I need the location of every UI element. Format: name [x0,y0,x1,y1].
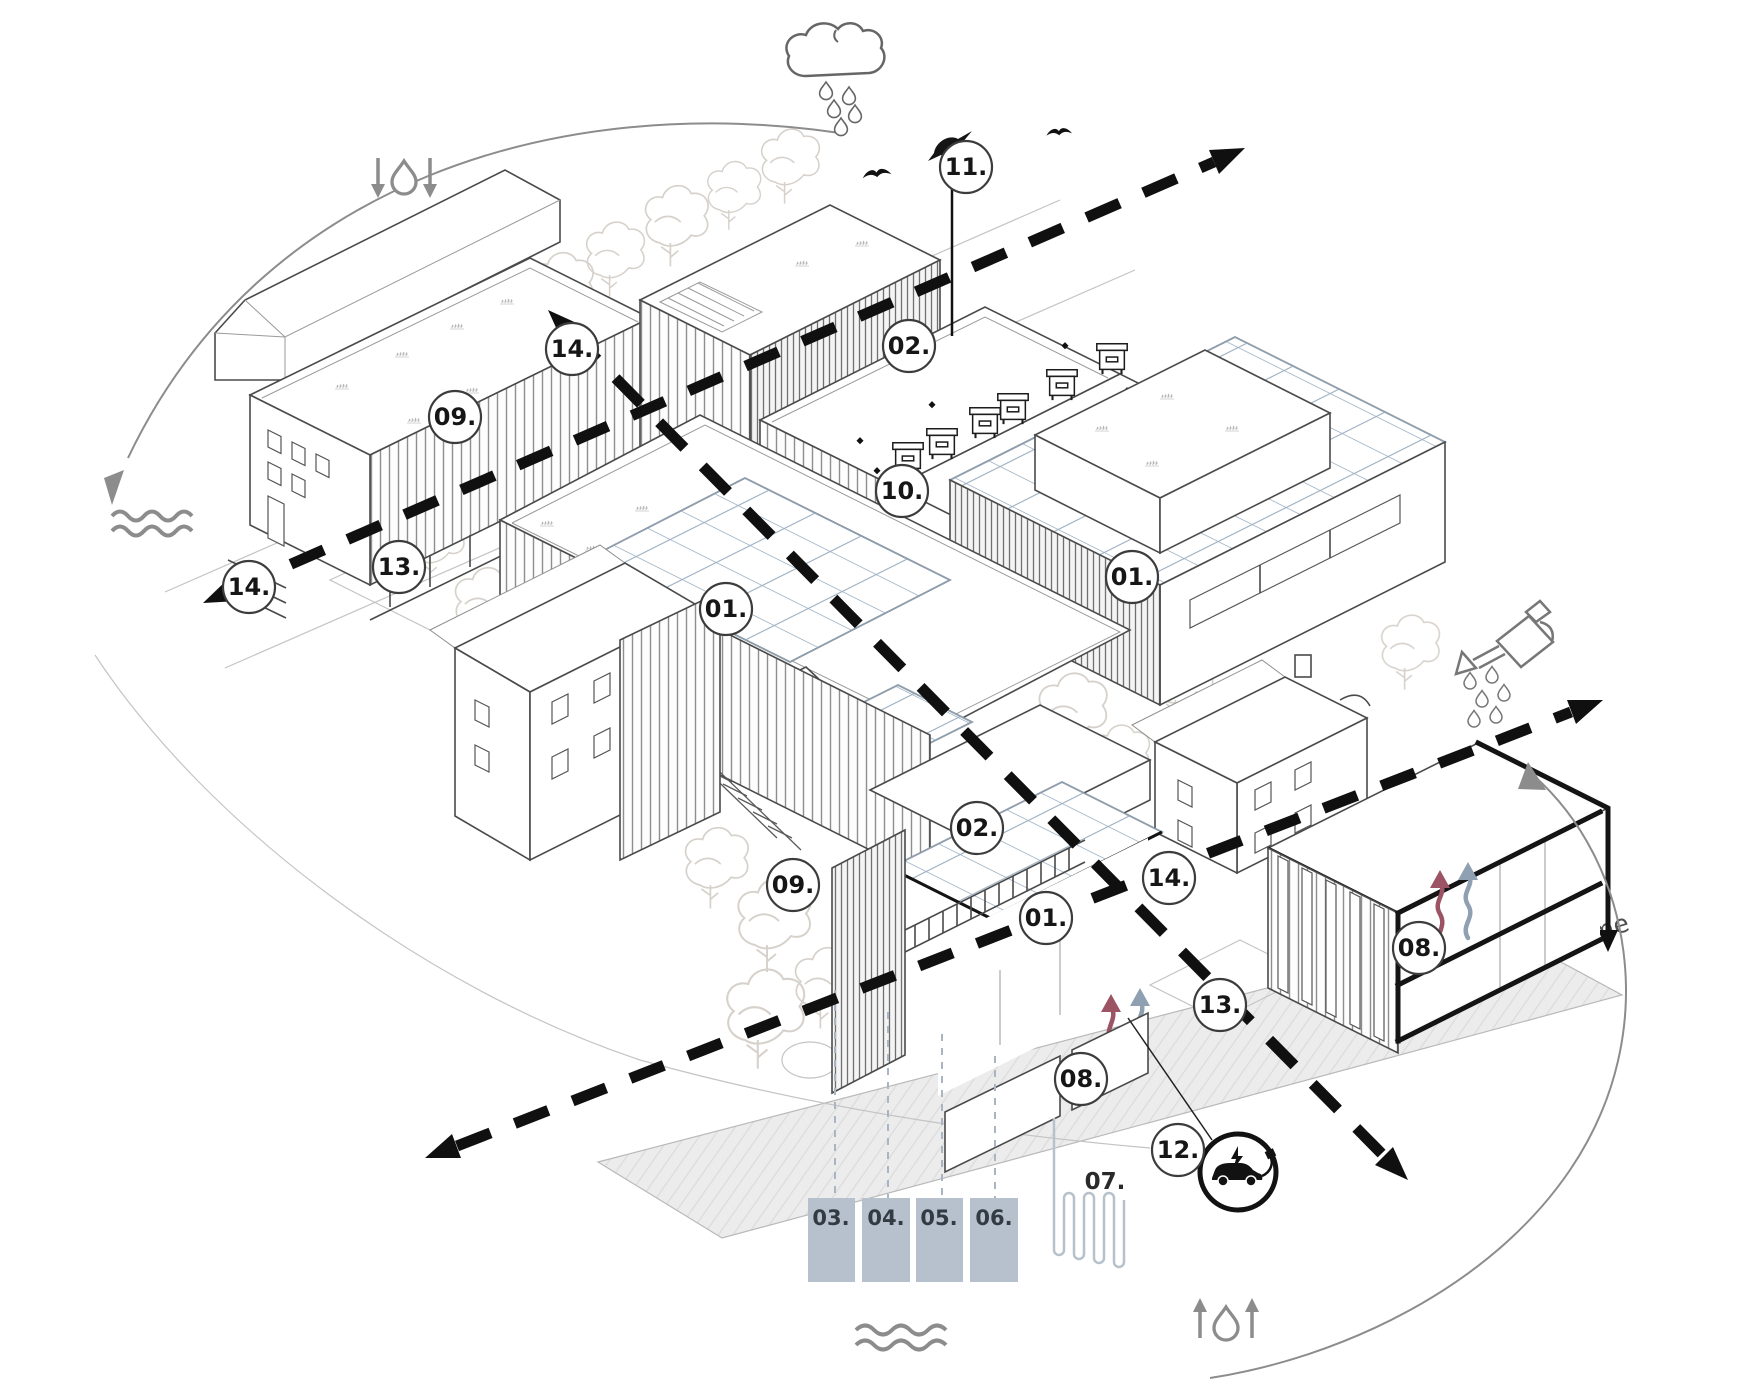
svg-text:10.: 10. [881,477,924,505]
groundwater-waves-left-icon [112,512,192,536]
box-04-label: 04. [867,1206,904,1230]
callout-08-east: 08. [1393,922,1445,974]
callout-02-center: 02. [951,802,1003,854]
underground-boxes: 03. 04. 05. 06. [808,1198,1018,1282]
callout-14-northwest: 14. [546,323,598,375]
svg-text:13.: 13. [1199,991,1242,1019]
svg-text:01.: 01. [1025,904,1068,932]
callout-09-north: 09. [429,391,481,443]
svg-text:01.: 01. [1111,563,1154,591]
svg-text:12.: 12. [1157,1136,1200,1164]
svg-text:09.: 09. [772,871,815,899]
callout-01-south: 01. [1020,892,1072,944]
svg-text:14.: 14. [1148,864,1191,892]
infiltration-drop-down-arrows-icon [371,158,437,198]
rain-cloud-icon [786,23,884,135]
svg-text:11.: 11. [945,153,988,181]
svg-text:02.: 02. [888,332,931,360]
callout-13-east: 13. [1194,979,1246,1031]
flying-bird-icon [1046,127,1072,136]
callout-08-south: 08. [1055,1053,1107,1105]
callout-01-center: 01. [700,583,752,635]
callout-11-mast: 11. [940,141,992,193]
svg-text:02.: 02. [956,814,999,842]
callout-09-center: 09. [767,859,819,911]
groundwater-waves-bottom-icon [856,1326,946,1350]
flying-bird-icon [862,168,892,180]
chimney [1295,655,1311,677]
tree-pit-ellipse [782,1042,838,1078]
diagram-page: grunty rodzime [0,0,1750,1400]
svg-text:13.: 13. [378,553,421,581]
watering-drops [1464,667,1510,728]
curve-arrowhead-west [104,470,124,505]
svg-text:08.: 08. [1398,934,1441,962]
axonometric-diagram: grunty rodzime [0,0,1750,1400]
callout-14-west: 14. [223,561,275,613]
box-03-label: 03. [812,1206,849,1230]
watering-can-icon [1456,601,1553,727]
svg-text:09.: 09. [434,403,477,431]
ev-charging-icon [1200,1134,1276,1210]
slat-screen-south [832,830,905,1093]
svg-text:08.: 08. [1060,1065,1103,1093]
callout-14-east: 14. [1143,852,1195,904]
box-05-label: 05. [920,1206,957,1230]
svg-text:14.: 14. [551,335,594,363]
svg-text:01.: 01. [705,595,748,623]
callout-12-ev: 12. [1152,1124,1204,1176]
callout-01-east: 01. [1106,551,1158,603]
callout-02-north: 02. [883,320,935,372]
box-06-label: 06. [975,1206,1012,1230]
rain-drops [820,82,862,136]
evaporation-drop-up-arrows-icon [1193,1298,1259,1340]
svg-text:14.: 14. [228,573,271,601]
callout-13-west: 13. [373,541,425,593]
tenement-slat-screen [620,592,720,860]
callout-10-beehives: 10. [876,465,928,517]
geothermal-07-label: 07. [1085,1169,1126,1195]
